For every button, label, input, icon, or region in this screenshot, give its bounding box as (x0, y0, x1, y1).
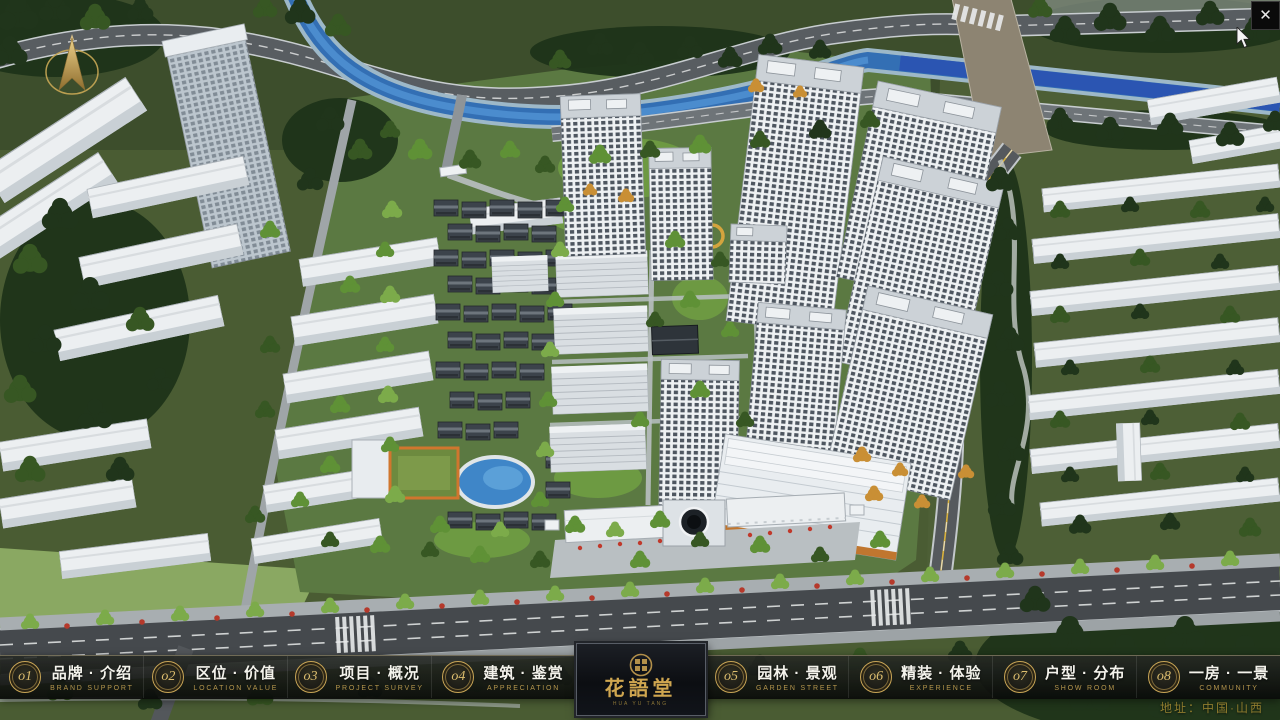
project-tagline: HUA YU TANG (613, 701, 668, 707)
logo-seal-icon (629, 653, 653, 677)
masterplan-3d-view[interactable] (0, 0, 1280, 720)
nav-number-badge: o3 (295, 661, 327, 693)
bottom-navbar: o1 品牌 · 介绍 BRAND SUPPORT o2 区位 · 价值 LOCA… (0, 655, 1280, 699)
project-logo-panel[interactable]: 花語堂 HUA YU TANG (576, 643, 706, 716)
nav-subtitle: COMMUNITY (1199, 685, 1258, 692)
nav-subtitle: PROJECT SURVEY (336, 685, 424, 692)
nav-title: 项目 · 概况 (340, 662, 420, 683)
nav-item-location-value[interactable]: o2 区位 · 价值 LOCATION VALUE (144, 656, 288, 698)
close-button[interactable]: ✕ (1251, 1, 1280, 30)
nav-subtitle: SHOW ROOM (1054, 685, 1116, 692)
nav-number-badge: o7 (1004, 661, 1036, 693)
nav-title: 建筑 · 鉴赏 (483, 662, 563, 683)
nav-title: 园林 · 景观 (757, 662, 837, 683)
nav-subtitle: BRAND SUPPORT (50, 685, 134, 692)
nav-item-architecture[interactable]: o4 建筑 · 鉴赏 APPRECIATION (432, 656, 576, 698)
nav-item-room-view[interactable]: o8 一房 · 一景 COMMUNITY (1137, 656, 1280, 698)
nav-title: 品牌 · 介绍 (52, 662, 132, 683)
nav-item-floorplans[interactable]: o7 户型 · 分布 SHOW ROOM (993, 656, 1137, 698)
sales-presentation-app: ✕ o1 品牌 · 介绍 BRAND SUPPORT o2 区位 · 价值 LO… (0, 0, 1280, 720)
project-address: 地址：中国·山西 (1160, 699, 1264, 716)
nav-item-landscape[interactable]: o5 园林 · 景观 GARDEN STREET (706, 656, 850, 698)
nav-subtitle: LOCATION VALUE (193, 685, 278, 692)
nav-number-badge: o2 (152, 661, 184, 693)
nav-item-brand-intro[interactable]: o1 品牌 · 介绍 BRAND SUPPORT (0, 656, 144, 698)
nav-number-badge: o4 (442, 661, 474, 693)
nav-number-badge: o1 (9, 661, 41, 693)
nav-item-project-overview[interactable]: o3 项目 · 概况 PROJECT SURVEY (288, 656, 432, 698)
nav-title: 一房 · 一景 (1189, 662, 1269, 683)
nav-number-badge: o5 (715, 661, 747, 693)
nav-title: 户型 · 分布 (1045, 662, 1125, 683)
nav-subtitle: GARDEN STREET (756, 685, 839, 692)
close-icon: ✕ (1259, 8, 1272, 23)
pavilion (652, 325, 699, 355)
nav-number-badge: o8 (1148, 661, 1180, 693)
swimming-pool (455, 455, 535, 509)
nav-subtitle: APPRECIATION (487, 685, 560, 692)
nav-title: 精装 · 体验 (901, 662, 981, 683)
nav-subtitle: EXPERIENCE (910, 685, 973, 692)
project-name: 花語堂 (605, 679, 677, 699)
nav-title: 区位 · 价值 (196, 662, 276, 683)
nav-item-interior-experience[interactable]: o6 精装 · 体验 EXPERIENCE (849, 656, 993, 698)
nav-number-badge: o6 (860, 661, 892, 693)
